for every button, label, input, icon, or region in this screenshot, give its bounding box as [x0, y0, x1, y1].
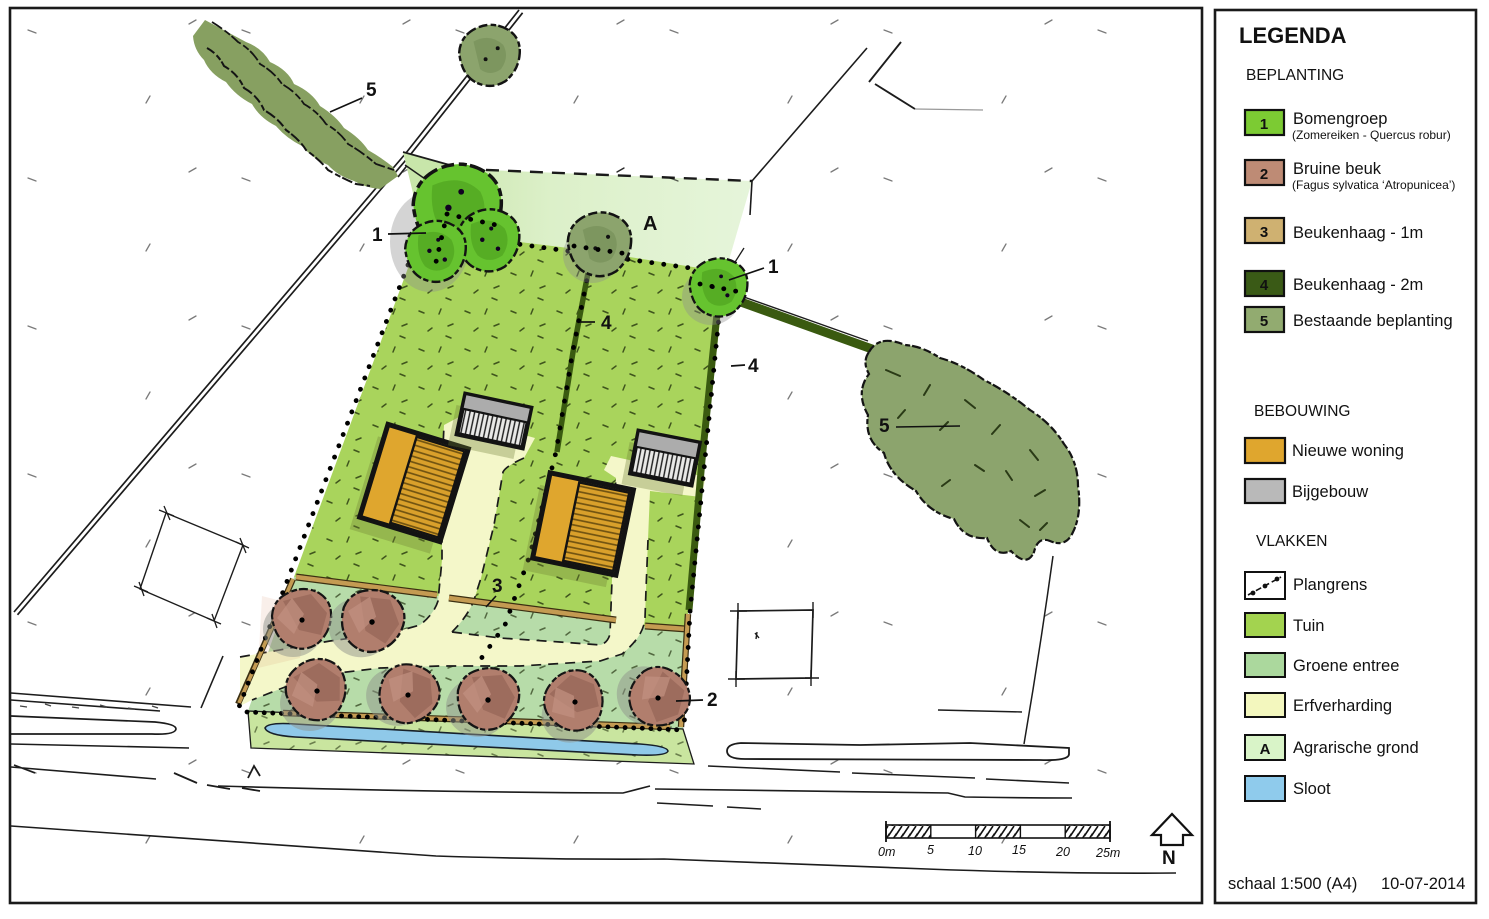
svg-text:2: 2	[707, 690, 718, 711]
svg-text:(Fagus sylvatica ‘Atropunicea’: (Fagus sylvatica ‘Atropunicea’)	[1292, 178, 1455, 192]
svg-text:Tuin: Tuin	[1293, 617, 1325, 635]
svg-text:A: A	[1260, 741, 1271, 758]
svg-text:A: A	[643, 213, 657, 235]
svg-text:LEGENDA: LEGENDA	[1239, 23, 1347, 48]
svg-text:(Zomereiken - Quercus robur): (Zomereiken - Quercus robur)	[1292, 128, 1451, 142]
svg-text:Bruine beuk: Bruine beuk	[1293, 160, 1382, 178]
svg-text:Groene entree: Groene entree	[1293, 657, 1399, 675]
svg-text:Erfverharding: Erfverharding	[1293, 697, 1392, 715]
svg-text:Bijgebouw: Bijgebouw	[1292, 483, 1368, 501]
svg-text:0m: 0m	[878, 845, 895, 859]
svg-text:25m: 25m	[1095, 846, 1120, 860]
svg-text:1: 1	[372, 225, 383, 246]
svg-text:Beukenhaag - 1m: Beukenhaag - 1m	[1293, 224, 1423, 242]
svg-text:Bestaande beplanting: Bestaande beplanting	[1293, 312, 1453, 330]
svg-text:15: 15	[1012, 843, 1026, 857]
svg-text:BEPLANTING: BEPLANTING	[1246, 67, 1344, 84]
svg-text:Sloot: Sloot	[1293, 780, 1331, 798]
svg-text:Nieuwe woning: Nieuwe woning	[1292, 442, 1404, 460]
svg-text:5: 5	[366, 80, 377, 101]
svg-text:VLAKKEN: VLAKKEN	[1256, 533, 1328, 550]
svg-text:20: 20	[1055, 845, 1070, 859]
svg-text:schaal 1:500 (A4): schaal 1:500 (A4)	[1228, 875, 1357, 893]
svg-text:3: 3	[1260, 224, 1268, 241]
svg-text:Agrarische grond: Agrarische grond	[1293, 739, 1419, 757]
svg-text:1: 1	[1260, 116, 1268, 133]
svg-text:4: 4	[601, 313, 612, 334]
svg-text:2: 2	[1260, 166, 1268, 183]
svg-text:4: 4	[1260, 277, 1269, 294]
svg-text:10-07-2014: 10-07-2014	[1381, 875, 1465, 893]
svg-text:5: 5	[1260, 313, 1268, 330]
svg-text:Beukenhaag - 2m: Beukenhaag - 2m	[1293, 276, 1423, 294]
svg-text:10: 10	[968, 844, 982, 858]
svg-text:5: 5	[927, 843, 934, 857]
svg-text:Bomengroep: Bomengroep	[1293, 110, 1387, 128]
svg-text:4: 4	[748, 356, 759, 377]
svg-text:Plangrens: Plangrens	[1293, 576, 1367, 594]
svg-text:5: 5	[879, 416, 890, 437]
svg-text:BEBOUWING: BEBOUWING	[1254, 403, 1350, 420]
svg-text:N: N	[1162, 848, 1176, 869]
svg-text:1: 1	[768, 257, 779, 278]
svg-text:3: 3	[492, 576, 503, 597]
